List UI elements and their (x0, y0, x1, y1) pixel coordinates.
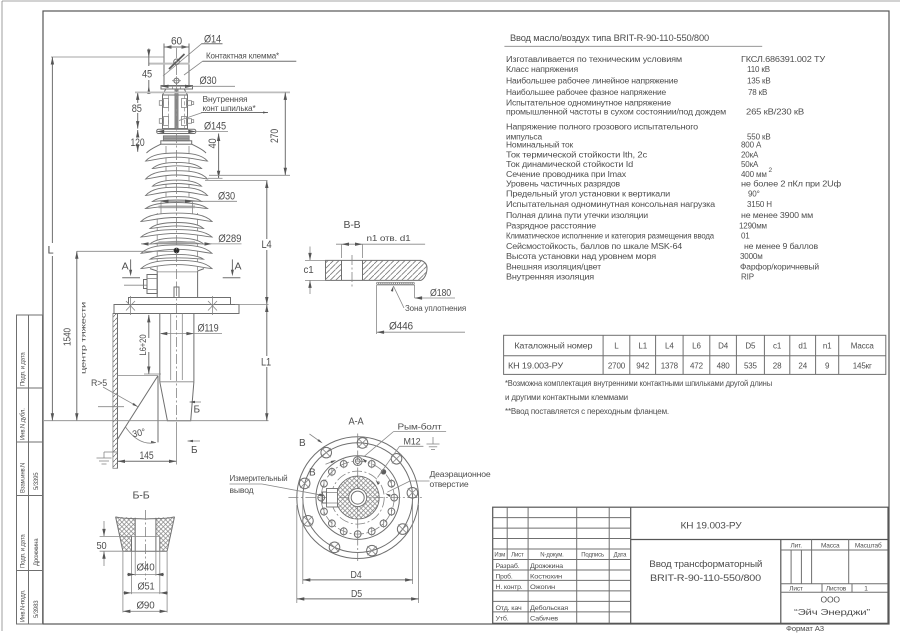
svg-text:RIP: RIP (741, 273, 754, 282)
svg-text:24: 24 (798, 361, 807, 370)
svg-text:3150 Н: 3150 Н (747, 200, 772, 209)
svg-text:Контактная клемма*: Контактная клемма* (206, 52, 279, 61)
svg-text:L6: L6 (692, 342, 701, 351)
svg-text:90°: 90° (748, 189, 760, 198)
svg-text:5/3395: 5/3395 (34, 472, 40, 490)
svg-text:Инв.N дубл.: Инв.N дубл. (21, 408, 27, 440)
svg-text:Сабичев: Сабичев (530, 616, 558, 622)
svg-text:B: B (309, 468, 316, 479)
svg-text:Н. контр.: Н. контр. (496, 585, 524, 591)
svg-text:не более 2 пКл при 2Uф: не более 2 пКл при 2Uф (741, 180, 842, 189)
svg-text:А-А: А-А (349, 416, 364, 428)
svg-text:800 А: 800 А (741, 141, 762, 150)
svg-text:Климатическое исполнение и кат: Климатическое исполнение и категория раз… (506, 232, 715, 241)
svg-text:d1: d1 (798, 342, 807, 351)
svg-text:Изм: Изм (494, 553, 505, 559)
svg-text:L: L (614, 342, 619, 351)
svg-text:Дрожжина: Дрожжина (34, 538, 40, 566)
svg-text:D5: D5 (745, 342, 756, 351)
svg-text:L4: L4 (665, 342, 674, 351)
svg-text:Б: Б (191, 445, 198, 456)
svg-text:Сейсмостойкость, баллов по шка: Сейсмостойкость, баллов по шкале MSK-64 (506, 242, 683, 251)
svg-text:270: 270 (269, 129, 281, 143)
svg-text:50: 50 (97, 540, 107, 552)
svg-text:Отд. кач: Отд. кач (496, 606, 522, 612)
svg-text:1290мм: 1290мм (739, 222, 767, 231)
svg-text:9: 9 (825, 361, 830, 370)
svg-text:45: 45 (142, 69, 152, 81)
svg-text:Ø446: Ø446 (389, 321, 413, 333)
svg-text:центр тяжести: центр тяжести (81, 301, 88, 374)
svg-text:Напряжение полного грозового и: Напряжение полного грозового испытательн… (506, 123, 699, 132)
svg-text:Каталожный номер: Каталожный номер (514, 342, 593, 351)
svg-text:Зона уплотнения: Зона уплотнения (405, 304, 466, 313)
svg-text:Полная длина пути утечки изоля: Полная длина пути утечки изоляции (506, 211, 648, 220)
svg-text:Масса: Масса (821, 543, 840, 550)
svg-text:Высота установки над уровнем м: Высота установки над уровнем моря (506, 252, 656, 261)
svg-text:B: B (299, 438, 306, 449)
svg-text:Сечение проводника при Imax: Сечение проводника при Imax (506, 170, 626, 179)
svg-text:Формат А3: Формат А3 (786, 626, 824, 633)
svg-text:Ø30: Ø30 (218, 190, 235, 202)
svg-text:Ввод масло/воздух типа BRIT-R-: Ввод масло/воздух типа BRIT-R-90-110-550… (510, 33, 709, 44)
svg-text:Ток термической стойкости Ith,: Ток термической стойкости Ith, 2с (506, 150, 647, 159)
svg-text:Ø119: Ø119 (198, 322, 219, 334)
svg-text:Ø30: Ø30 (200, 75, 217, 87)
svg-text:М12: М12 (404, 436, 421, 446)
svg-text:Подп. и дата: Подп. и дата (21, 352, 27, 386)
svg-text:“Эйч Энерджи”: “Эйч Энерджи” (794, 607, 870, 617)
svg-text:942: 942 (636, 361, 650, 370)
svg-text:n1: n1 (823, 342, 832, 351)
svg-text:КН 19.003-РУ: КН 19.003-РУ (508, 361, 564, 370)
svg-text:L1: L1 (261, 356, 271, 368)
svg-text:L4: L4 (262, 239, 272, 251)
svg-text:Класс напряжения: Класс напряжения (506, 65, 578, 74)
svg-text:*Возможна комплектация внутрен: *Возможна комплектация внутренними конта… (505, 379, 772, 388)
svg-text:c1: c1 (773, 342, 782, 351)
svg-text:Разраб.: Разраб. (496, 564, 521, 570)
svg-text:Дата: Дата (614, 553, 627, 559)
svg-text:R>5: R>5 (91, 378, 107, 389)
svg-text:Ø180: Ø180 (430, 287, 451, 299)
svg-text:Утб.: Утб. (496, 616, 510, 622)
svg-text:2: 2 (769, 167, 773, 174)
svg-text:вывод: вывод (230, 486, 255, 495)
svg-text:L: L (48, 245, 54, 257)
svg-text:не менее 3900 мм: не менее 3900 мм (741, 211, 813, 220)
svg-text:1: 1 (864, 586, 868, 593)
svg-text:Лит.: Лит. (791, 543, 803, 550)
svg-text:Ø90: Ø90 (137, 599, 155, 611)
svg-text:1378: 1378 (661, 361, 679, 370)
svg-text:Внутренняя: Внутренняя (203, 95, 248, 104)
svg-text:N-докум.: N-докум. (540, 553, 564, 559)
svg-text:А: А (234, 261, 241, 273)
svg-text:n1 отв. d1: n1 отв. d1 (367, 233, 411, 243)
svg-text:Фарфор/коричневый: Фарфор/коричневый (740, 262, 819, 271)
svg-text:145: 145 (140, 450, 154, 462)
svg-text:В-В: В-В (344, 219, 361, 231)
svg-text:2700: 2700 (608, 361, 626, 370)
svg-text:Предельный угол установки к ве: Предельный угол установки к вертикали (506, 189, 670, 198)
svg-text:Лист: Лист (789, 586, 803, 593)
svg-text:Листов: Листов (826, 586, 847, 593)
svg-text:c1: c1 (304, 265, 315, 276)
svg-text:145кг: 145кг (853, 361, 872, 370)
svg-text:Номинальный ток: Номинальный ток (506, 141, 574, 150)
svg-text:265 кВ/230 кВ: 265 кВ/230 кВ (746, 107, 804, 116)
svg-text:1540: 1540 (62, 328, 74, 346)
svg-text:Подп. и дата: Подп. и дата (21, 534, 27, 568)
svg-text:отверстие: отверстие (430, 480, 470, 489)
svg-text:конт шпилька*: конт шпилька* (203, 104, 256, 113)
svg-text:Б: Б (194, 405, 201, 416)
svg-text:Ø145: Ø145 (204, 120, 226, 132)
svg-text:Наибольшее рабочее фазное напр: Наибольшее рабочее фазное напряжение (506, 88, 667, 97)
svg-text:40: 40 (207, 138, 219, 148)
svg-text:Уровень частичных разрядов: Уровень частичных разрядов (506, 180, 620, 189)
svg-text:01: 01 (741, 232, 750, 241)
svg-text:60: 60 (171, 36, 182, 48)
svg-text:Проб.: Проб. (496, 575, 514, 581)
svg-text:Испытательная одноминутная кон: Испытательная одноминутная консольная на… (506, 200, 716, 209)
svg-text:120: 120 (131, 137, 145, 149)
svg-text:400 мм: 400 мм (741, 170, 767, 179)
svg-text:Дрожжина: Дрожжина (530, 564, 564, 570)
svg-text:78 кВ: 78 кВ (748, 88, 767, 97)
svg-text:110 кВ: 110 кВ (747, 65, 770, 74)
svg-text:BRIT-R-90-110-550/800: BRIT-R-90-110-550/800 (650, 573, 761, 584)
svg-text:Костюхин: Костюхин (530, 575, 562, 581)
svg-text:Масштаб: Масштаб (855, 542, 882, 550)
svg-text:Рым-болт: Рым-болт (398, 422, 443, 431)
svg-text:Наибольшее рабочее линейное на: Наибольшее рабочее линейное напряжение (506, 77, 679, 86)
svg-text:Ø40: Ø40 (137, 562, 155, 574)
svg-text:промышленной частоты в сухом с: промышленной частоты в сухом состоянии/п… (506, 107, 726, 116)
svg-text:20кА: 20кА (741, 150, 759, 159)
svg-text:28: 28 (773, 361, 782, 370)
svg-text:А: А (122, 261, 129, 273)
svg-text:85: 85 (132, 103, 142, 115)
svg-text:50кА: 50кА (741, 160, 759, 169)
svg-text:Деаэрационное: Деаэрационное (430, 470, 492, 479)
svg-text:135 кВ: 135 кВ (747, 77, 771, 86)
svg-text:КН 19.003-РУ: КН 19.003-РУ (681, 521, 743, 532)
svg-text:D4: D4 (718, 342, 729, 351)
svg-text:ООО: ООО (821, 595, 841, 605)
svg-text:Ток динамической стойкости Id: Ток динамической стойкости Id (506, 160, 633, 169)
svg-text:472: 472 (690, 361, 704, 370)
svg-text:не менее 9 баллов: не менее 9 баллов (744, 242, 818, 251)
svg-text:Измерительный: Измерительный (230, 474, 288, 483)
svg-text:Инв.N-подл.: Инв.N-подл. (21, 589, 27, 622)
svg-text:ГКСЛ.686391.002 ТУ: ГКСЛ.686391.002 ТУ (741, 55, 826, 64)
svg-text:Изготавливается по техническим: Изготавливается по техническим условиям (506, 55, 682, 64)
svg-text:и другими контактными клеммами: и другими контактными клеммами (505, 393, 628, 402)
svg-text:Б-Б: Б-Б (133, 490, 150, 502)
svg-text:Взам.инв.N: Взам.инв.N (21, 463, 27, 493)
svg-text:Ø289: Ø289 (218, 233, 241, 245)
svg-text:Разрядное расстояние: Разрядное расстояние (506, 222, 597, 231)
svg-text:5/3983: 5/3983 (34, 600, 40, 618)
svg-text:Испытательное одноминутное нап: Испытательное одноминутное напряжение (506, 99, 672, 108)
svg-text:Ожогин: Ожогин (530, 585, 555, 591)
svg-text:Внутренняя изоляция: Внутренняя изоляция (506, 273, 594, 282)
svg-text:Ø51: Ø51 (138, 581, 155, 593)
svg-text:D5: D5 (351, 588, 362, 600)
svg-text:3000м: 3000м (740, 252, 763, 261)
svg-text:Внешняя изоляция/цвет: Внешняя изоляция/цвет (506, 262, 602, 271)
svg-text:535: 535 (744, 361, 758, 370)
svg-text:**Ввод поставляется с переход: **Ввод поставляется с переходным фланцем… (505, 407, 669, 416)
svg-text:D4: D4 (351, 569, 362, 581)
svg-text:L6+20: L6+20 (138, 335, 149, 356)
svg-text:Масса: Масса (851, 342, 875, 351)
svg-text:Ввод трансформаторный: Ввод трансформаторный (649, 559, 762, 570)
svg-text:480: 480 (717, 361, 731, 370)
svg-text:L1: L1 (638, 342, 647, 351)
svg-text:Дебольская: Дебольская (530, 606, 568, 612)
svg-text:Лист: Лист (511, 553, 524, 559)
svg-text:Подпись: Подпись (581, 553, 604, 559)
